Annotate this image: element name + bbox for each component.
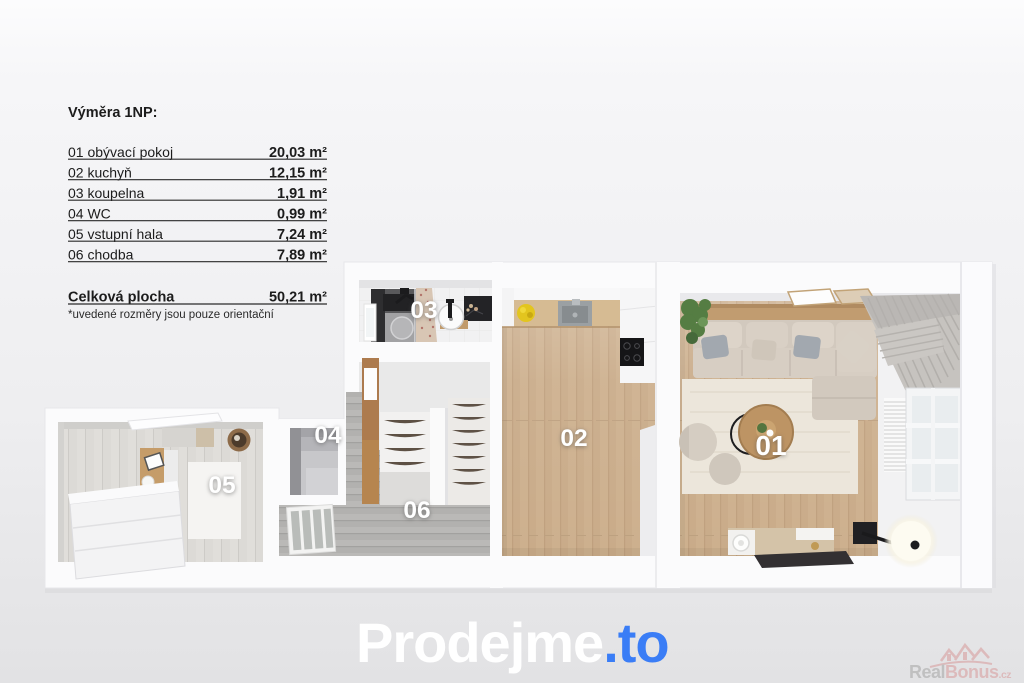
svg-text:06 chodba: 06 chodba bbox=[68, 247, 134, 263]
svg-text:01: 01 bbox=[755, 430, 786, 461]
svg-text:12,15 m²: 12,15 m² bbox=[269, 166, 327, 182]
svg-text:04 WC: 04 WC bbox=[68, 206, 111, 222]
svg-text:06: 06 bbox=[403, 497, 430, 524]
svg-text:02: 02 bbox=[560, 425, 587, 452]
svg-text:7,89 m²: 7,89 m² bbox=[277, 248, 327, 264]
svg-text:Celková plocha: Celková plocha bbox=[68, 290, 175, 306]
svg-text:50,21 m²: 50,21 m² bbox=[269, 290, 327, 306]
svg-text:Prodejme.to: Prodejme.to bbox=[356, 611, 669, 674]
svg-text:01 obývací pokoj: 01 obývací pokoj bbox=[68, 144, 173, 160]
svg-text:1,91 m²: 1,91 m² bbox=[277, 186, 327, 202]
svg-text:05: 05 bbox=[208, 472, 235, 499]
svg-text:05 vstupní hala: 05 vstupní hala bbox=[68, 226, 163, 242]
svg-text:04: 04 bbox=[314, 422, 342, 449]
svg-text:03 koupelna: 03 koupelna bbox=[68, 185, 145, 201]
svg-text:Výměra 1NP:: Výměra 1NP: bbox=[68, 105, 157, 121]
svg-text:*uvedené rozměry jsou pouze or: *uvedené rozměry jsou pouze orientační bbox=[68, 309, 275, 321]
svg-text:20,03 m²: 20,03 m² bbox=[269, 145, 327, 161]
svg-text:02 kuchyň: 02 kuchyň bbox=[68, 165, 132, 181]
svg-text:0,99 m²: 0,99 m² bbox=[277, 207, 327, 223]
svg-text:RealBonus.cz: RealBonus.cz bbox=[909, 662, 1011, 682]
svg-text:7,24 m²: 7,24 m² bbox=[277, 227, 327, 243]
svg-text:03: 03 bbox=[410, 297, 437, 324]
